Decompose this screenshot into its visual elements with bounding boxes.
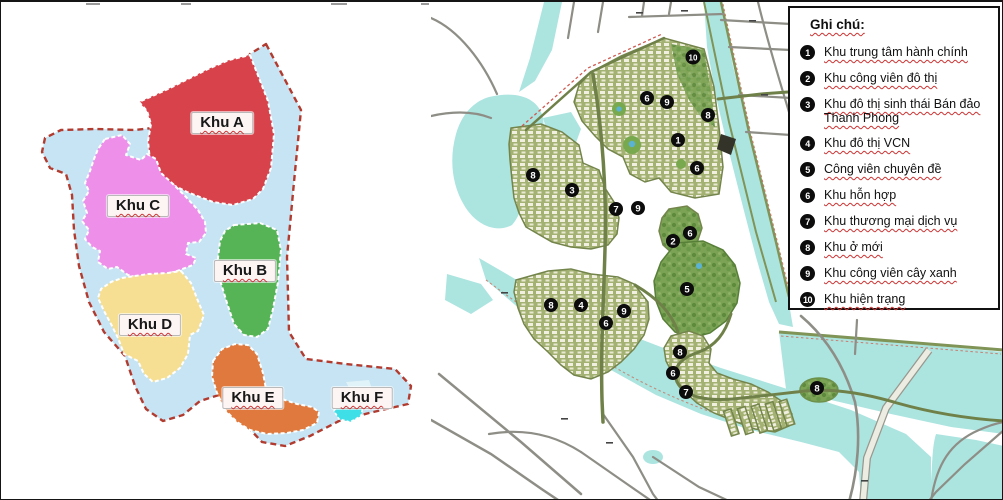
svg-text:8: 8 bbox=[548, 300, 553, 311]
legend-item-number: 5 bbox=[800, 162, 815, 177]
svg-text:4: 4 bbox=[578, 300, 584, 311]
legend-item-label: Khu đô thị sinh thái Bán đảo Thanh Phong bbox=[824, 97, 990, 125]
map-marker: 8 bbox=[810, 381, 824, 395]
svg-text:10: 10 bbox=[689, 53, 698, 62]
region-label-text: Khu A bbox=[200, 114, 244, 131]
svg-text:8: 8 bbox=[677, 347, 682, 358]
legend-item-label: Khu ở mới bbox=[824, 240, 883, 254]
map-marker: 6 bbox=[666, 366, 680, 380]
svg-text:3: 3 bbox=[569, 185, 574, 196]
legend-item-label: Công viên chuyên đề bbox=[824, 162, 941, 176]
legend-item-6: 6 Khu hỗn hợp bbox=[800, 188, 990, 203]
map-marker: 9 bbox=[617, 304, 631, 318]
map-marker: 3 bbox=[565, 183, 579, 197]
svg-text:6: 6 bbox=[644, 93, 649, 104]
legend-item-label: Khu công viên cây xanh bbox=[824, 266, 957, 280]
map-marker: 7 bbox=[609, 202, 623, 216]
region-label-khu-a: Khu A bbox=[191, 112, 253, 134]
legend-item-number: 1 bbox=[800, 45, 815, 60]
svg-text:7: 7 bbox=[613, 204, 618, 215]
map-marker: 4 bbox=[574, 298, 588, 312]
svg-text:8: 8 bbox=[530, 170, 535, 181]
legend-item-1: 1 Khu trung tâm hành chính bbox=[800, 45, 990, 60]
map-marker: 8 bbox=[544, 298, 558, 312]
legend-item-label: Khu công viên đô thị bbox=[824, 71, 937, 85]
map-marker: 9 bbox=[660, 95, 674, 109]
legend-item-label: Khu hỗn hợp bbox=[824, 188, 896, 202]
legend-box: Ghi chú: 1 Khu trung tâm hành chính 2 Kh… bbox=[788, 6, 1000, 310]
legend-item-number: 4 bbox=[800, 136, 815, 151]
zone-overview-map bbox=[1, 2, 431, 500]
legend-item-9: 9 Khu công viên cây xanh bbox=[800, 266, 990, 281]
map-marker: 1 bbox=[671, 133, 685, 147]
svg-text:1: 1 bbox=[675, 135, 681, 146]
legend-item-number: 6 bbox=[800, 188, 815, 203]
map-marker: 8 bbox=[526, 168, 540, 182]
map-marker: 6 bbox=[599, 316, 613, 330]
legend-item-label: Khu thương mại dịch vụ bbox=[824, 214, 957, 228]
map-marker: 6 bbox=[683, 226, 697, 240]
svg-text:8: 8 bbox=[705, 110, 710, 121]
svg-text:7: 7 bbox=[683, 387, 688, 398]
map-marker: 7 bbox=[679, 385, 693, 399]
top-crop-marks bbox=[86, 3, 429, 5]
region-label-khu-d: Khu D bbox=[119, 314, 181, 336]
legend-item-number: 8 bbox=[800, 240, 815, 255]
region-label-text: Khu C bbox=[116, 197, 160, 214]
region-label-text: Khu D bbox=[128, 316, 172, 333]
svg-text:9: 9 bbox=[635, 203, 640, 214]
legend-item-number: 3 bbox=[800, 97, 815, 112]
legend-item-number: 10 bbox=[800, 292, 815, 307]
map-marker: 8 bbox=[673, 345, 687, 359]
svg-text:6: 6 bbox=[670, 368, 675, 379]
map-marker: 10 bbox=[686, 50, 701, 65]
svg-text:6: 6 bbox=[694, 163, 699, 174]
svg-text:2: 2 bbox=[670, 236, 675, 247]
legend-item-label: Khu đô thị VCN bbox=[824, 136, 910, 150]
legend-item-7: 7 Khu thương mại dịch vụ bbox=[800, 214, 990, 229]
legend-title: Ghi chú: bbox=[810, 17, 990, 32]
legend-item-8: 8 Khu ở mới bbox=[800, 240, 990, 255]
map-marker: 9 bbox=[631, 201, 645, 215]
map-marker: 8 bbox=[701, 108, 715, 122]
legend-item-number: 9 bbox=[800, 266, 815, 281]
planning-map-figure: Khu A Khu C Khu B Khu D Khu E Khu F bbox=[0, 0, 1003, 500]
region-label-khu-c: Khu C bbox=[107, 195, 169, 217]
legend-item-number: 7 bbox=[800, 214, 815, 229]
map-marker: 6 bbox=[690, 161, 704, 175]
svg-text:6: 6 bbox=[687, 228, 692, 239]
legend-item-3: 3 Khu đô thị sinh thái Bán đảo Thanh Pho… bbox=[800, 97, 990, 125]
legend-item-4: 4 Khu đô thị VCN bbox=[800, 136, 990, 151]
legend-item-label: Khu trung tâm hành chính bbox=[824, 45, 968, 59]
map-marker: 6 bbox=[640, 91, 654, 105]
region-label-khu-e: Khu E bbox=[222, 387, 283, 409]
map-marker: 5 bbox=[680, 282, 694, 296]
svg-text:9: 9 bbox=[621, 306, 626, 317]
svg-text:6: 6 bbox=[603, 318, 608, 329]
region-label-text: Khu B bbox=[223, 262, 267, 279]
region-label-text: Khu F bbox=[341, 389, 384, 406]
legend-item-10: 10 Khu hiện trạng bbox=[800, 292, 990, 307]
legend-item-number: 2 bbox=[800, 71, 815, 86]
legend-item-label: Khu hiện trạng bbox=[824, 292, 905, 306]
region-label-text: Khu E bbox=[231, 389, 274, 406]
legend-item-5: 5 Công viên chuyên đề bbox=[800, 162, 990, 177]
legend-item-2: 2 Khu công viên đô thị bbox=[800, 71, 990, 86]
svg-text:8: 8 bbox=[814, 383, 819, 394]
region-label-khu-b: Khu B bbox=[214, 260, 276, 282]
svg-text:5: 5 bbox=[684, 284, 690, 295]
region-label-khu-f: Khu F bbox=[332, 387, 393, 409]
svg-text:9: 9 bbox=[664, 97, 669, 108]
map-marker: 2 bbox=[666, 234, 680, 248]
